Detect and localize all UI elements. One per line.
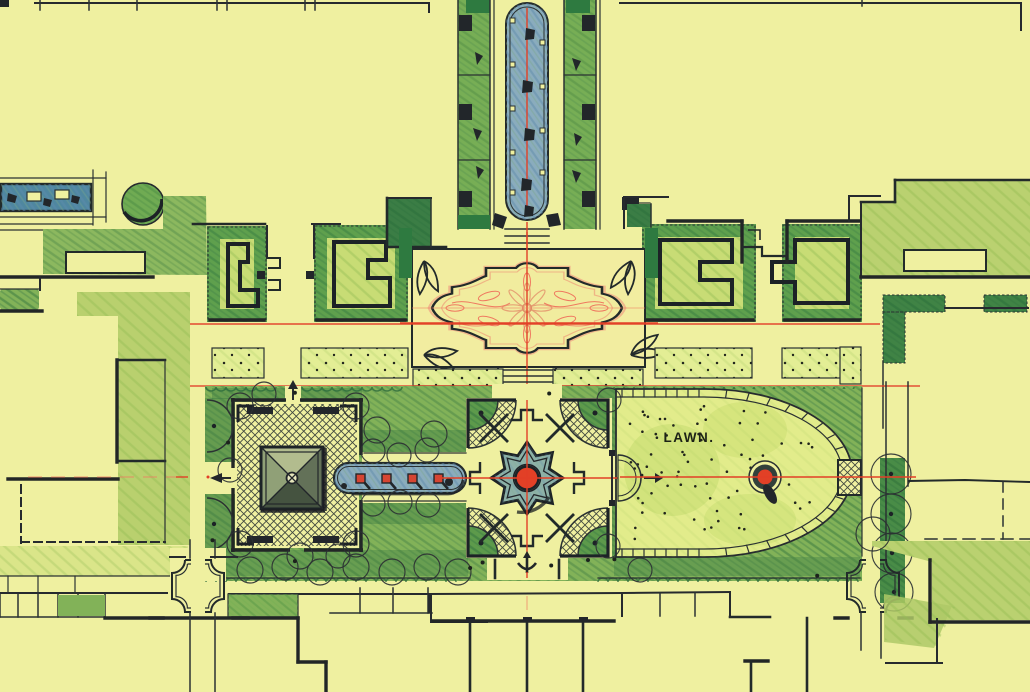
svg-text:LAWN.: LAWN. xyxy=(664,430,715,445)
